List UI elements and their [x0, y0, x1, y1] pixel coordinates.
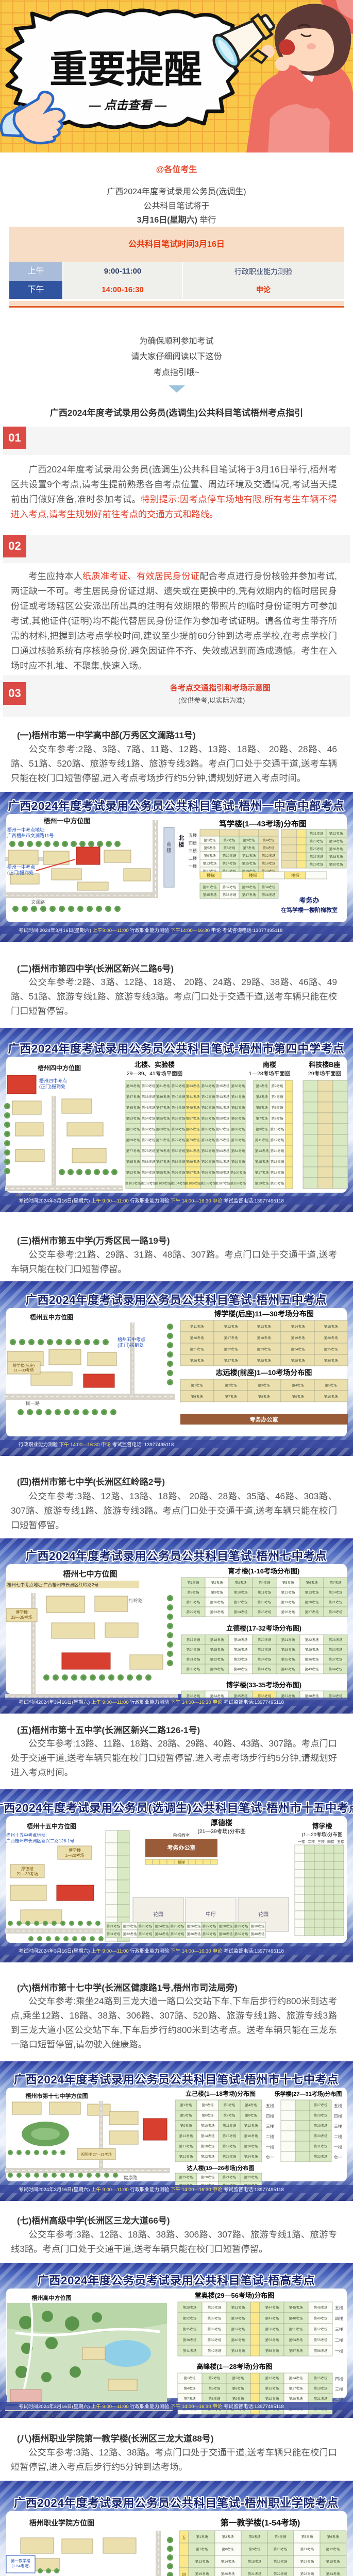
svg-text:第52考场: 第52考场	[314, 2327, 328, 2331]
svg-text:第13考场: 第13考场	[255, 1148, 269, 1153]
svg-text:第44考场: 第44考场	[265, 2305, 279, 2310]
svg-text:29考场平面图: 29考场平面图	[308, 1070, 341, 1077]
svg-text:第20考场: 第20考场	[324, 1335, 338, 1340]
svg-text:第103考场: 第103考场	[155, 1181, 171, 1185]
svg-text:第22考场: 第22考场	[224, 1347, 238, 1351]
svg-text:第35考场: 第35考场	[203, 892, 217, 897]
svg-text:第3考场: 第3考场	[243, 838, 255, 842]
svg-text:楼梯: 楼梯	[291, 873, 299, 878]
svg-text:第50考场: 第50考场	[201, 1105, 215, 1110]
svg-text:第97考场: 第97考场	[186, 1170, 200, 1175]
svg-text:第3考场: 第3考场	[223, 2103, 236, 2107]
svg-text:堂奥楼(29—56考场)分布图: 堂奥楼(29—56考场)分布图	[195, 2292, 275, 2299]
svg-text:第22考场: 第22考场	[187, 1609, 200, 1614]
svg-text:第34考场: 第34考场	[258, 1657, 272, 1662]
svg-text:二楼: 二楼	[266, 2134, 274, 2139]
svg-text:第9考场: 第9考场	[256, 1127, 268, 1131]
svg-text:第22考场: 第22考场	[329, 831, 343, 836]
svg-text:第91考场: 第91考场	[216, 1159, 230, 1164]
svg-text:第29考场: 第29考场	[126, 1083, 140, 1088]
svg-text:第96考场: 第96考场	[172, 1170, 186, 1175]
svg-text:第38考场: 第38考场	[262, 892, 276, 897]
svg-text:第27考场: 第27考场	[258, 1647, 272, 1652]
svg-text:第10考场: 第10考场	[234, 1590, 248, 1595]
svg-text:第4考场: 第4考场	[183, 2386, 196, 2391]
svg-text:第36考场: 第36考场	[305, 1657, 319, 1662]
svg-text:第78考场: 第78考场	[142, 1148, 156, 1153]
svg-text:第18考场: 第18考场	[201, 2144, 215, 2148]
svg-text:二楼: 二楼	[189, 856, 197, 861]
svg-text:第30考场: 第30考场	[142, 1083, 156, 1088]
svg-text:第7考场: 第7考场	[243, 845, 255, 850]
svg-text:第39考场: 第39考场	[156, 1094, 170, 1099]
svg-text:第31考场: 第31考场	[187, 1657, 200, 1662]
svg-text:(正门)报到处: (正门)报到处	[117, 1342, 144, 1348]
svg-text:第26考场: 第26考场	[190, 1358, 204, 1363]
svg-text:考试时间2024年3月16日(星期六) 上午 9:00—11: 考试时间2024年3月16日(星期六) 上午 9:00—11:00 行政职业能力…	[19, 1699, 284, 1705]
svg-text:第31考场: 第31考场	[203, 885, 217, 889]
svg-text:第18考场: 第18考场	[271, 1170, 284, 1175]
svg-text:第53考场: 第53考场	[126, 1116, 140, 1121]
svg-text:三楼: 三楼	[335, 2386, 343, 2392]
svg-text:梧州市第十七中学方位图: 梧州市第十七中学方位图	[26, 2092, 88, 2099]
svg-text:第18考场: 第18考场	[210, 1637, 224, 1642]
svg-text:第16考场: 第16考场	[271, 1159, 284, 1164]
svg-text:第85考场: 第85考场	[126, 1159, 140, 1164]
svg-text:梧州七中考点地址:广西梧州市长洲区红岭路2号: 梧州七中考点地址:广西梧州市长洲区红岭路2号	[7, 1582, 98, 1587]
svg-text:第16考场: 第16考场	[265, 2386, 279, 2391]
svg-text:第11考场: 第11考场	[258, 1590, 272, 1595]
svg-text:梧州四中方位图: 梧州四中方位图	[38, 1064, 81, 1072]
svg-text:第20考场: 第20考场	[289, 2396, 303, 2401]
svg-text:第14考场: 第14考场	[271, 1148, 284, 1153]
svg-text:第3考场: 第3考场	[248, 2534, 261, 2539]
svg-text:四: 四	[182, 2572, 186, 2576]
svg-text:第28考场: 第28考场	[329, 1609, 343, 1614]
svg-text:第55考场: 第55考场	[156, 1116, 170, 1121]
svg-text:梧州四中考点: 梧州四中考点	[39, 1078, 67, 1083]
svg-text:第1考场: 第1考场	[196, 2534, 208, 2539]
svg-text:第32考场: 第32考场	[123, 1931, 137, 1936]
svg-text:第19考场: 第19考场	[281, 1600, 295, 1604]
svg-text:第31考场: 第31考场	[314, 2144, 328, 2148]
svg-text:负一: 负一	[266, 2155, 274, 2160]
svg-text:第45考场: 第45考场	[289, 2305, 303, 2310]
svg-text:乐学楼(27—31考场)分布图: 乐学楼(27—31考场)分布图	[275, 2090, 342, 2097]
svg-text:第24考场: 第24考场	[329, 839, 343, 843]
svg-text:梧州高中方位图: 梧州高中方位图	[32, 2294, 72, 2301]
svg-text:第12考场: 第12考场	[281, 1590, 295, 1595]
svg-text:第16考场: 第16考场	[210, 1600, 224, 1604]
svg-text:第43考场: 第43考场	[305, 1667, 319, 1671]
svg-text:第26考场: 第26考场	[187, 1924, 201, 1928]
svg-text:第51考场: 第51考场	[289, 2327, 303, 2331]
svg-text:第3考场: 第3考场	[232, 2376, 244, 2380]
svg-text:第20考场: 第20考场	[201, 2175, 215, 2179]
svg-text:33—35考场: 33—35考场	[11, 1615, 32, 1620]
svg-text:第20考场: 第20考场	[305, 1600, 319, 1604]
svg-text:第47考场: 第47考场	[265, 2316, 279, 2320]
svg-text:梧州五中考点: 梧州五中考点	[117, 1336, 145, 1342]
svg-text:第6考场: 第6考场	[271, 1105, 283, 1110]
svg-text:一楼: 一楼	[298, 1839, 305, 1844]
svg-text:第50考场: 第50考场	[265, 2327, 279, 2331]
svg-text:第32考场: 第32考场	[172, 1083, 186, 1088]
svg-text:第42考场: 第42考场	[201, 1094, 215, 1099]
svg-text:第20考场: 第20考场	[271, 1181, 284, 1185]
svg-text:第19考场: 第19考场	[265, 2396, 279, 2401]
svg-text:第27考场: 第27考场	[203, 1924, 216, 1928]
svg-text:广西梧州市长洲区新兴二路126-1号: 广西梧州市长洲区新兴二路126-1号	[6, 1838, 74, 1843]
svg-text:花园: 花园	[153, 1911, 163, 1918]
svg-text:第6考场: 第6考场	[191, 1394, 203, 1399]
svg-text:考务办公室: 考务办公室	[167, 1844, 196, 1851]
svg-text:第20考场: 第20考场	[258, 1637, 272, 1642]
svg-text:第30考场: 第30考场	[208, 2305, 222, 2310]
svg-text:第9考场: 第9考场	[180, 2123, 192, 2128]
svg-text:第21考场: 第21考场	[281, 1637, 295, 1642]
svg-text:第32考场: 第32考场	[183, 2316, 197, 2320]
svg-text:第57考场: 第57考场	[289, 2348, 303, 2353]
svg-text:第31考场: 第31考场	[107, 1931, 121, 1936]
svg-text:第13考场: 第13考场	[265, 2376, 279, 2380]
svg-text:第15考场: 第15考场	[187, 1600, 200, 1604]
svg-text:第35考场: 第35考场	[183, 2327, 197, 2331]
svg-text:第72考场: 第72考场	[172, 1138, 186, 1142]
svg-text:第102考场: 第102考场	[141, 1181, 157, 1185]
svg-text:梧州一中方位图: 梧州一中方位图	[43, 817, 90, 825]
svg-text:第24考场: 第24考场	[326, 2571, 340, 2576]
svg-text:第54考场: 第54考场	[289, 2337, 303, 2342]
svg-text:第74考场: 第74考场	[201, 1138, 215, 1142]
svg-text:第40考场: 第40考场	[234, 1667, 248, 1671]
svg-text:第23考场: 第23考场	[329, 1637, 343, 1642]
svg-text:第8考场: 第8考场	[222, 2547, 234, 2551]
svg-text:第24考场: 第24考场	[291, 1347, 305, 1351]
svg-text:第68考场: 第68考场	[231, 1127, 245, 1131]
svg-text:第95考场: 第95考场	[156, 1170, 170, 1175]
svg-text:考试时间2024年3月16日(星期六) 上午 9:00—11: 考试时间2024年3月16日(星期六) 上午 9:00—11:00 行政职业能力…	[19, 2187, 284, 2193]
svg-text:第16考场: 第16考场	[190, 1335, 204, 1340]
svg-text:四楼: 四楼	[189, 840, 197, 845]
svg-text:第107考场: 第107考场	[215, 1181, 231, 1185]
svg-text:第105考场: 第105考场	[185, 1181, 201, 1185]
svg-text:达人楼(19—26考场)分布图: 达人楼(19—26考场)分布图	[187, 2164, 255, 2172]
svg-text:四楼: 四楼	[266, 2113, 274, 2119]
svg-text:第22考场: 第22考场	[244, 2175, 258, 2179]
svg-text:第12考场: 第12考场	[262, 853, 276, 858]
svg-text:第32考场: 第32考场	[210, 1657, 224, 1662]
svg-text:第8考场: 第8考场	[187, 1590, 199, 1595]
svg-text:第2考场: 第2考场	[271, 1083, 283, 1088]
svg-text:第22考场: 第22考场	[274, 2571, 288, 2576]
svg-text:第38考场: 第38考场	[142, 1094, 156, 1099]
svg-text:第36考场: 第36考场	[231, 1083, 245, 1088]
svg-text:第27考场: 第27考场	[305, 1609, 319, 1614]
svg-text:第70考场: 第70考场	[142, 1138, 156, 1142]
svg-text:第57考场: 第57考场	[186, 1116, 200, 1121]
svg-text:第24考场: 第24考场	[244, 2154, 258, 2159]
svg-text:第56考场: 第56考场	[265, 2348, 279, 2353]
svg-text:第46考场: 第46考场	[314, 2305, 328, 2310]
svg-text:第26考场: 第26考场	[281, 1609, 295, 1614]
svg-text:第46考场: 第46考场	[142, 1105, 156, 1110]
svg-text:第23考场: 第23考场	[223, 2154, 237, 2159]
svg-text:考务办: 考务办	[299, 896, 319, 904]
svg-text:第9考场: 第9考场	[232, 2396, 244, 2401]
svg-text:第81考场: 第81考场	[186, 1148, 200, 1153]
svg-text:第4考场: 第4考场	[292, 1383, 304, 1387]
svg-text:第17考场: 第17考场	[234, 1600, 248, 1604]
svg-text:第2考场: 第2考场	[201, 2103, 214, 2107]
svg-text:第32考场: 第32考场	[314, 2154, 328, 2159]
svg-text:一楼: 一楼	[266, 2144, 274, 2149]
svg-text:广西2024年度考试录用公务员(选调生)公共科目笔试-梧州市: 广西2024年度考试录用公务员(选调生)公共科目笔试-梧州市十五中考点	[0, 1802, 353, 1815]
svg-text:第4考场: 第4考场	[271, 1094, 283, 1099]
svg-text:文澜路: 文澜路	[31, 899, 45, 905]
svg-text:第84考场: 第84考场	[231, 1148, 245, 1153]
svg-text:第37考场: 第37考场	[126, 1094, 140, 1099]
svg-text:第8考场: 第8考场	[271, 1116, 283, 1121]
svg-text:五楼: 五楼	[335, 2305, 343, 2310]
svg-text:梧州十五中考点地址:: 梧州十五中考点地址:	[6, 1833, 47, 1838]
svg-text:第28考场: 第28考场	[281, 1647, 295, 1652]
svg-text:博学楼: 博学楼	[15, 1609, 28, 1615]
svg-text:第4考场: 第4考场	[262, 838, 275, 842]
svg-text:第2考场: 第2考场	[211, 1580, 223, 1585]
svg-text:二楼: 二楼	[308, 1839, 315, 1844]
svg-text:第30考场: 第30考场	[324, 1358, 338, 1363]
svg-text:立己楼(1—18考场)分布图: 立己楼(1—18考场)分布图	[186, 2090, 256, 2097]
svg-text:民一路: 民一路	[26, 1400, 40, 1406]
svg-text:第25考场: 第25考场	[324, 1347, 338, 1351]
svg-text:第2考场: 第2考场	[225, 1383, 237, 1387]
svg-text:29—39、41考场平面图: 29—39、41考场平面图	[127, 1070, 183, 1077]
svg-text:南楼: 南楼	[166, 841, 172, 854]
svg-text:志远楼(前座)1—10考场分布图: 志远楼(前座)1—10考场分布图	[216, 1368, 312, 1377]
svg-text:三楼: 三楼	[335, 2327, 343, 2332]
svg-text:第26考场: 第26考场	[329, 846, 343, 851]
svg-text:第56考场: 第56考场	[172, 1116, 186, 1121]
svg-text:第11考场: 第11考场	[190, 1324, 204, 1329]
svg-text:广西2024年度公务员考试录用公共科目笔试-梧高考点: 广西2024年度公务员考试录用公共科目笔试-梧高考点	[37, 2274, 315, 2287]
svg-text:第87考场: 第87考场	[156, 1159, 170, 1164]
svg-text:梧州职业学院方位图: 梧州职业学院方位图	[29, 2519, 94, 2527]
svg-text:第12考场: 第12考场	[271, 1138, 284, 1142]
svg-text:第13考场: 第13考场	[179, 2133, 193, 2138]
svg-text:第29考场: 第29考场	[291, 1358, 305, 1363]
svg-text:第14考场: 第14考场	[201, 2133, 215, 2138]
svg-text:三龙大道: 三龙大道	[41, 2413, 60, 2418]
svg-text:第16考场: 第16考场	[262, 861, 276, 866]
svg-text:第27考场: 第27考场	[224, 1358, 238, 1363]
svg-text:第38考场: 第38考场	[187, 1667, 200, 1671]
svg-text:第23考场: 第23考场	[310, 839, 324, 843]
svg-text:第6考场: 第6考场	[201, 2113, 214, 2117]
svg-text:南楼: 南楼	[263, 1061, 276, 1069]
svg-text:第101考场: 第101考场	[125, 1181, 141, 1185]
svg-text:第39考场: 第39考场	[234, 1931, 248, 1936]
svg-text:第13考场: 第13考场	[305, 1590, 319, 1595]
svg-text:第41考场: 第41考场	[258, 1667, 272, 1671]
svg-text:第104考场: 第104考场	[171, 1181, 187, 1185]
svg-text:第5考场: 第5考场	[282, 1580, 294, 1585]
svg-text:第18考场: 第18考场	[314, 2386, 328, 2391]
svg-text:第90考场: 第90考场	[201, 1159, 215, 1164]
svg-text:花园: 花园	[258, 1911, 268, 1918]
svg-text:第29考场: 第29考场	[310, 862, 324, 867]
svg-text:第19考场: 第19考场	[179, 2175, 193, 2179]
svg-text:第36考场: 第36考场	[258, 1693, 272, 1698]
svg-text:博学楼: 博学楼	[69, 1848, 81, 1853]
svg-text:第30考场: 第30考场	[314, 2133, 328, 2138]
svg-text:第83考场: 第83考场	[216, 1148, 230, 1153]
svg-text:第94考场: 第94考场	[142, 1170, 156, 1175]
svg-text:第43考场: 第43考场	[231, 2348, 245, 2353]
svg-text:梧州一中考点地址:: 梧州一中考点地址:	[7, 827, 46, 833]
svg-text:广西2024年度考试录用公务员公共科目笔试-梧州五中考点: 广西2024年度考试录用公务员公共科目笔试-梧州五中考点	[26, 1294, 327, 1307]
svg-text:第63考场: 第63考场	[156, 1127, 170, 1131]
svg-text:博学楼(后座): 博学楼(后座)	[13, 1363, 35, 1368]
svg-text:第25考场: 第25考场	[210, 1647, 224, 1652]
svg-text:第一教学楼(1-54考场): 第一教学楼(1-54考场)	[221, 2518, 300, 2528]
svg-text:广西梧州市文澜路11号: 广西梧州市文澜路11号	[7, 833, 54, 838]
svg-text:第13考场: 第13考场	[257, 1324, 271, 1329]
svg-text:第33考场: 第33考场	[139, 1931, 153, 1936]
svg-text:第32考场: 第32考场	[223, 885, 237, 889]
svg-text:第6考场: 第6考场	[306, 1580, 318, 1585]
svg-text:第47考场: 第47考场	[156, 1105, 170, 1110]
svg-text:第4考场: 第4考场	[274, 2534, 287, 2539]
svg-text:第14考场: 第14考场	[223, 861, 237, 866]
svg-text:第8考场: 第8考场	[208, 2396, 221, 2401]
svg-text:第75考场: 第75考场	[216, 1138, 230, 1142]
svg-text:第15考场: 第15考场	[314, 2376, 328, 2380]
svg-text:五楼: 五楼	[334, 2103, 342, 2108]
svg-text:第11考场: 第11考场	[223, 2123, 237, 2128]
svg-text:第48考场: 第48考场	[289, 2316, 303, 2320]
svg-text:第21考场: 第21考场	[248, 2571, 262, 2576]
svg-text:第22考场: 第22考场	[201, 2154, 215, 2159]
svg-text:第28考场: 第28考场	[219, 1924, 233, 1928]
svg-text:一楼: 一楼	[334, 2144, 342, 2149]
svg-text:梧州十五中方位图: 梧州十五中方位图	[27, 1822, 76, 1830]
svg-text:三楼: 三楼	[317, 1839, 325, 1844]
svg-text:考务办公室: 考务办公室	[250, 1416, 278, 1423]
svg-text:第25考场: 第25考场	[258, 1609, 272, 1614]
svg-text:楼梯: 楼梯	[178, 1860, 185, 1865]
svg-text:广西2024年度考试录用公务员公共科目笔试-梧州市十七中考点: 广西2024年度考试录用公务员公共科目笔试-梧州市十七中考点	[14, 2073, 339, 2086]
svg-text:(1-54考场): (1-54考场)	[11, 2564, 30, 2568]
svg-text:第60考场: 第60考场	[231, 1116, 245, 1121]
svg-text:二楼: 二楼	[335, 2337, 343, 2343]
svg-text:第3考场: 第3考场	[256, 1094, 268, 1099]
svg-text:第99考场: 第99考场	[216, 1170, 230, 1175]
svg-text:第33考场: 第33考场	[242, 885, 256, 889]
svg-text:第31考场: 第31考场	[156, 1083, 170, 1088]
svg-text:第51考场: 第51考场	[216, 1105, 230, 1110]
svg-text:第7考场: 第7考场	[256, 1116, 268, 1121]
svg-text:厚德楼: 厚德楼	[21, 1866, 33, 1871]
svg-text:广西2024年度考试录用公务员公共科目笔试-梧州职业学院考点: 广西2024年度考试录用公务员公共科目笔试-梧州职业学院考点	[14, 2497, 339, 2510]
svg-text:第7考场: 第7考场	[329, 1580, 342, 1585]
svg-text:11—30考场: 11—30考场	[14, 1368, 34, 1372]
svg-text:第30考场: 第30考场	[329, 862, 343, 867]
svg-text:第11考场: 第11考场	[300, 2547, 314, 2551]
svg-text:四楼: 四楼	[335, 2316, 343, 2321]
svg-text:第15考场: 第15考场	[324, 1324, 338, 1329]
svg-text:重要提醒: 重要提醒	[49, 48, 202, 91]
svg-text:五楼: 五楼	[337, 1839, 344, 1844]
svg-text:第43考场: 第43考场	[216, 1094, 230, 1099]
svg-text:第16考场: 第16考场	[274, 2559, 288, 2564]
svg-text:第25考场: 第25考场	[310, 846, 324, 851]
svg-text:第6考场: 第6考场	[223, 845, 236, 850]
svg-text:视明楼 27—31考场: 视明楼 27—31考场	[81, 2152, 112, 2157]
svg-text:第58考场: 第58考场	[201, 1116, 215, 1121]
svg-text:第18考场: 第18考场	[257, 1335, 271, 1340]
svg-text:第7考场: 第7考场	[223, 2113, 236, 2117]
svg-text:第31考场: 第31考场	[231, 2305, 245, 2310]
svg-text:第35考场: 第35考场	[281, 1657, 295, 1662]
svg-text:第6考场: 第6考场	[232, 2386, 244, 2391]
svg-text:第21考场: 第21考场	[190, 1347, 204, 1351]
svg-text:第40考场: 第40考场	[231, 2337, 245, 2342]
svg-text:第40考场: 第40考场	[251, 1931, 265, 1936]
svg-text:北楼: 北楼	[179, 834, 184, 848]
svg-text:第15考场: 第15考场	[242, 861, 256, 866]
svg-text:第27考场: 第27考场	[310, 854, 324, 859]
svg-text:第39考场: 第39考场	[208, 2337, 222, 2342]
svg-text:第3考场: 第3考场	[234, 1580, 247, 1585]
svg-text:第21考场: 第21考场	[310, 831, 324, 836]
svg-text:第35考场: 第35考场	[234, 1693, 248, 1698]
svg-text:(21—39考场)分布图: (21—39考场)分布图	[197, 1828, 245, 1835]
svg-text:第54考场: 第54考场	[142, 1116, 156, 1121]
svg-text:第17考场: 第17考场	[187, 1637, 200, 1642]
svg-text:第33考场: 第33考场	[186, 1083, 200, 1088]
svg-text:第1考场: 第1考场	[183, 2376, 196, 2380]
svg-text:1—20考场: 1—20考场	[65, 1853, 84, 1858]
svg-text:第2考场: 第2考场	[223, 838, 236, 842]
svg-text:广西2024年度考试录用公务员公共科目笔试-梧州一中高中部考: 广西2024年度考试录用公务员公共科目笔试-梧州一中高中部考点	[8, 800, 344, 812]
svg-text:三楼: 三楼	[189, 848, 197, 853]
svg-text:第15考场: 第15考场	[248, 2559, 262, 2564]
svg-text:第23考场: 第23考场	[210, 1609, 224, 1614]
svg-text:第69考场: 第69考场	[126, 1138, 140, 1142]
svg-text:第4考场: 第4考场	[245, 2103, 257, 2107]
svg-text:第65考场: 第65考场	[186, 1127, 200, 1131]
svg-text:四楼: 四楼	[327, 1839, 334, 1844]
svg-text:第17考场: 第17考场	[179, 2144, 193, 2148]
svg-text:中厅: 中厅	[206, 1911, 216, 1918]
svg-text:广西2024年度考试录用公务员公共科目笔试-梧州市第四中学考: 广西2024年度考试录用公务员公共科目笔试-梧州市第四中学考点	[8, 1042, 344, 1055]
svg-text:第33考场: 第33考场	[208, 2316, 222, 2320]
svg-text:第71考场: 第71考场	[156, 1138, 170, 1142]
svg-text:第33考场: 第33考场	[187, 1693, 200, 1698]
svg-text:第24考场: 第24考场	[187, 1647, 200, 1652]
svg-text:第48考场: 第48考场	[172, 1105, 186, 1110]
svg-text:第86考场: 第86考场	[142, 1159, 156, 1164]
svg-text:第76考场: 第76考场	[231, 1138, 245, 1142]
svg-text:第14考场: 第14考场	[289, 2376, 303, 2380]
svg-text:第52考场: 第52考场	[231, 1105, 245, 1110]
svg-text:第92考场: 第92考场	[231, 1159, 245, 1164]
svg-text:第27考场: 第27考场	[314, 2103, 328, 2107]
svg-text:考试时间2024年3月16日(星期六) 上午 9:00—11: 考试时间2024年3月16日(星期六) 上午 9:00—11:00 行政职业能力…	[19, 1948, 284, 1954]
svg-text:第14考场: 第14考场	[221, 2559, 235, 2564]
svg-text:第16考场: 第16考场	[244, 2133, 258, 2138]
